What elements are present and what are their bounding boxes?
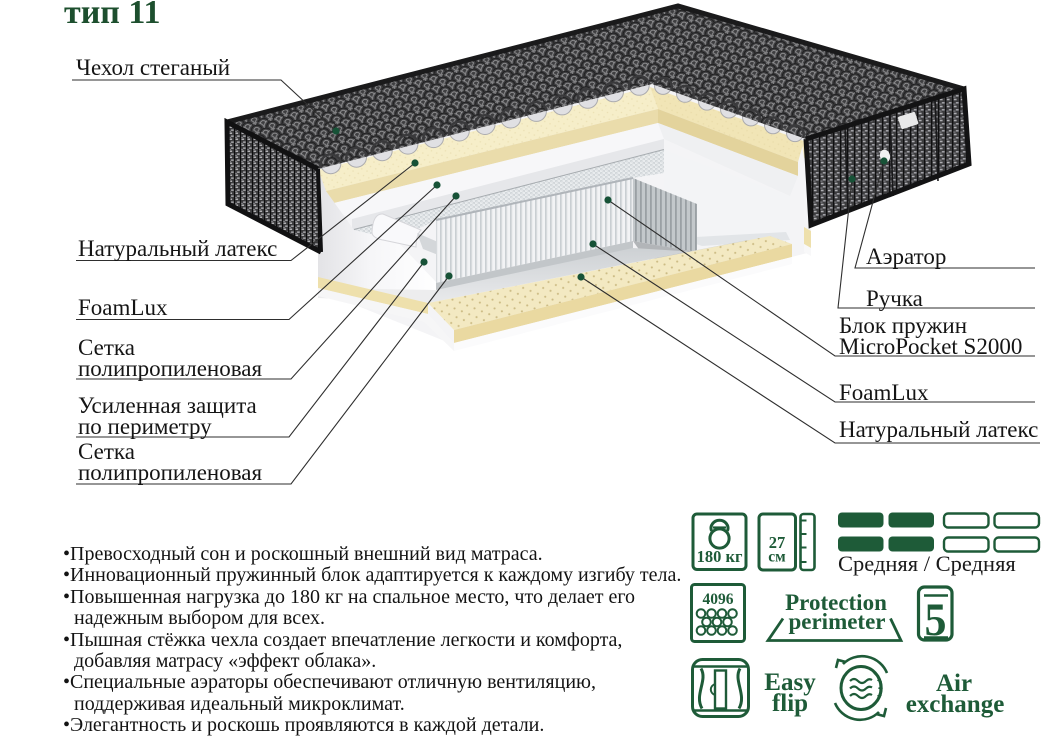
svg-text:perimeter: perimeter	[788, 609, 885, 634]
svg-text:180 кг: 180 кг	[697, 547, 743, 566]
svg-text:flip: flip	[772, 690, 808, 717]
svg-text:см: см	[768, 549, 786, 566]
svg-text:4096: 4096	[703, 591, 734, 608]
svg-text:exchange: exchange	[906, 691, 1005, 718]
svg-text:Средняя / Средняя: Средняя / Средняя	[838, 551, 1016, 576]
